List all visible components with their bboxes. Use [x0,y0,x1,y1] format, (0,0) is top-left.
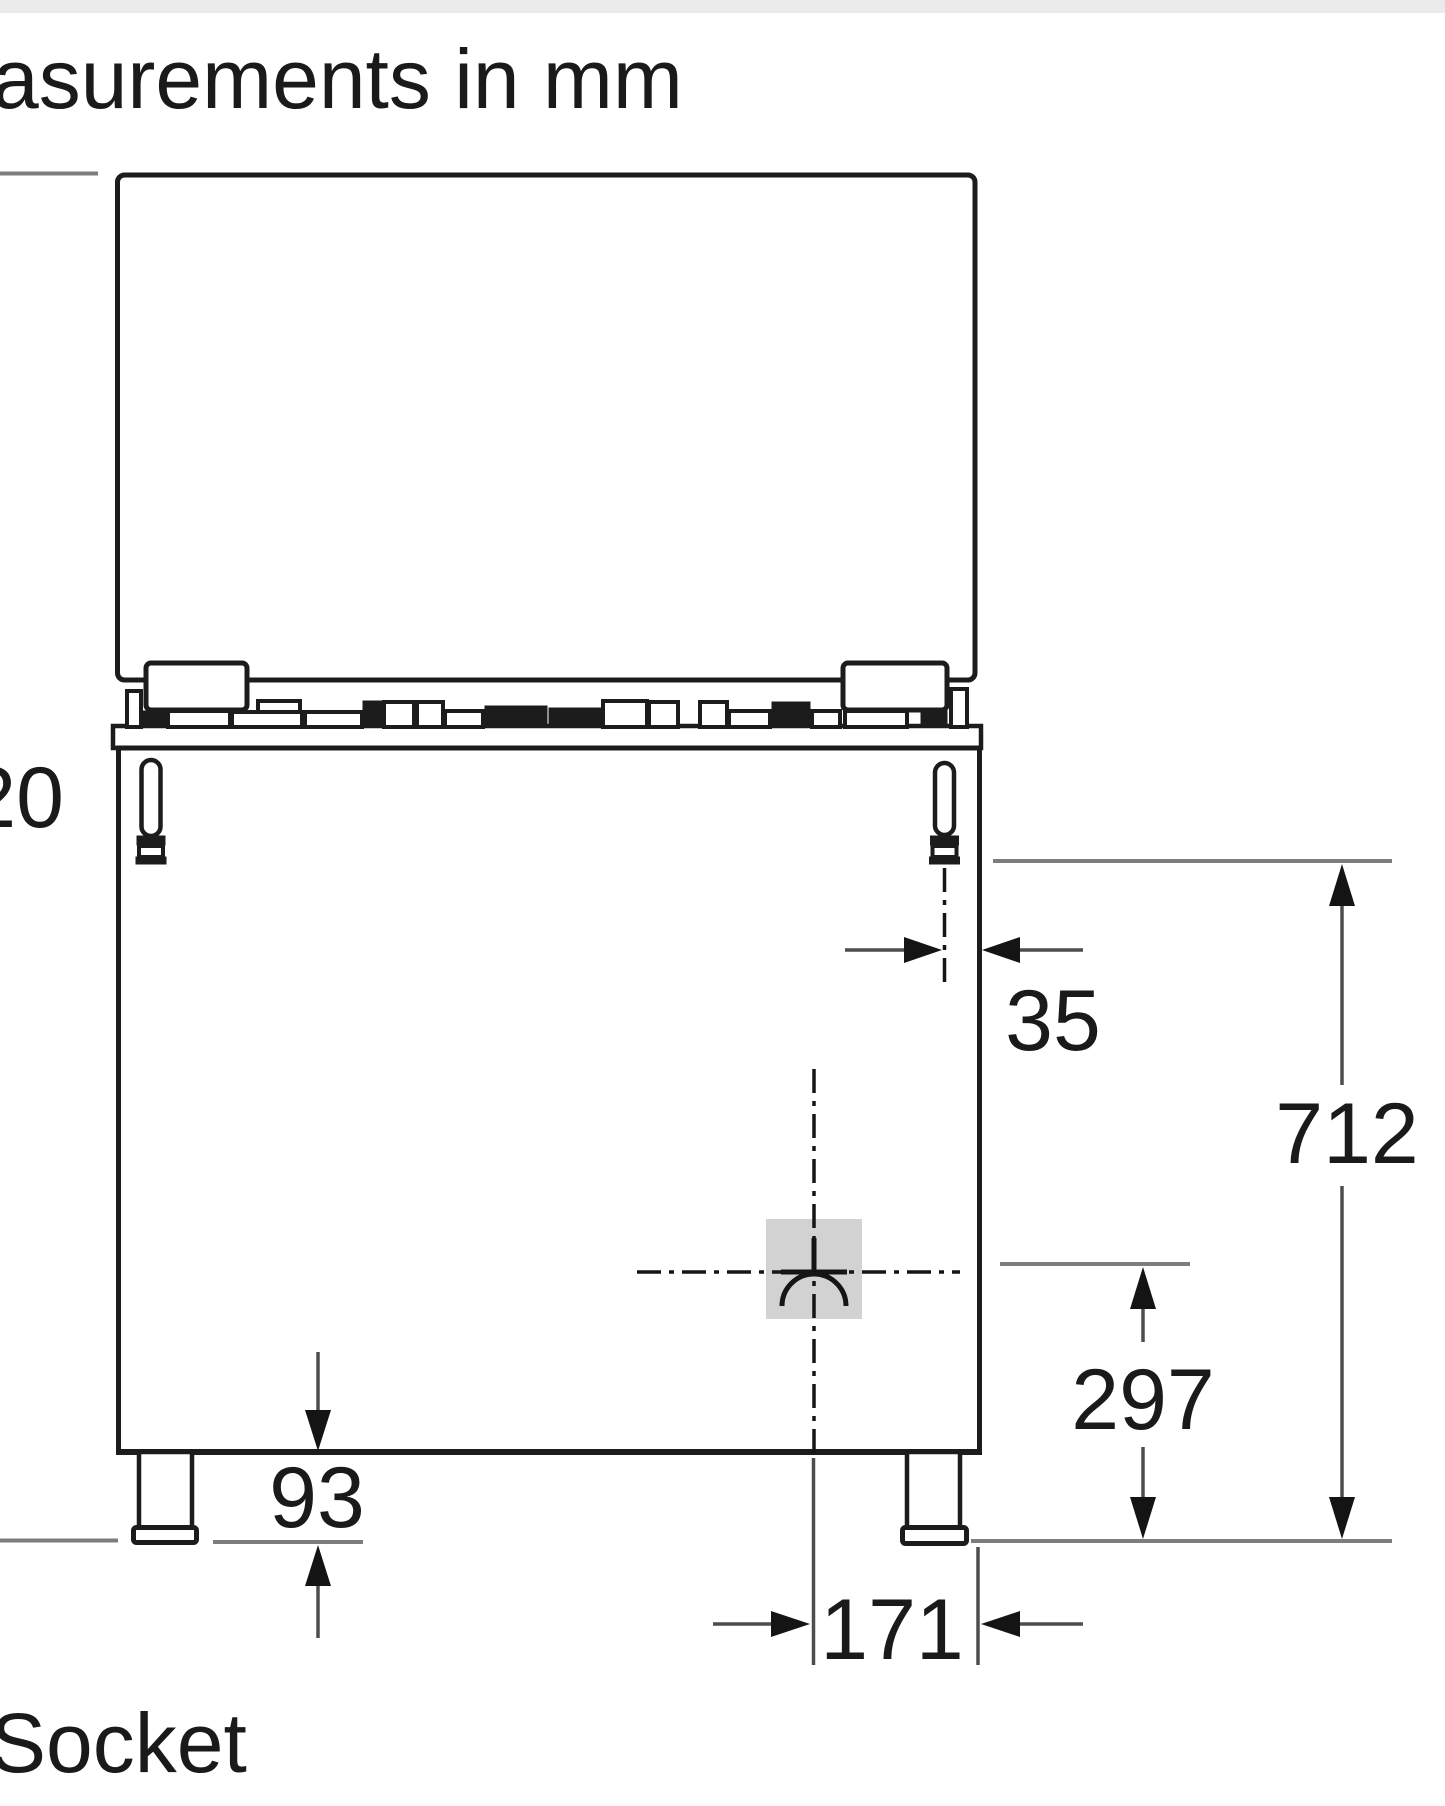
lid-open [118,175,976,680]
igniter-collar [930,857,960,864]
dim-297-label: 297 [1071,1352,1215,1448]
pan-support-segment [649,702,678,727]
cooktop-band [113,726,981,748]
foot-left [134,1452,197,1543]
pan-support-segment [168,711,230,727]
socket-label: Socket [0,1696,247,1790]
page-title: asurements in mm [0,32,683,126]
oven-body [119,748,980,1452]
igniter-collar [137,836,165,845]
pan-support-segment [812,711,840,727]
diagram-canvas: asurements in mm [0,0,1445,1806]
pan-support-segment [729,711,770,727]
igniter-rod [142,760,161,836]
hob-end-tab-left [127,691,141,727]
pan-support-segment [232,712,302,727]
igniter-rod [935,763,954,835]
pan-support-segment [143,711,169,727]
hob-end-tab-right [951,689,967,727]
igniter-left [136,760,166,864]
igniter-collar [139,846,163,857]
foot-right [903,1452,967,1544]
dim-712-label: 712 [1275,1086,1419,1182]
burner-cap-dark [485,706,547,727]
foot-cap [903,1528,967,1544]
foot-cap [134,1528,197,1543]
installation-dimension-diagram: asurements in mm [0,0,1445,1806]
burner-cap-dark [549,708,601,727]
top-edge-strip [0,0,1445,13]
pan-support-block-left [146,663,247,710]
pan-support-segment [921,711,947,727]
pan-support-block-right [843,663,947,710]
pan-support-segment [445,711,483,727]
pan-support-segment [603,701,647,727]
pan-support-segment [384,702,414,727]
pan-support-segment [417,702,443,727]
igniter-collar [136,857,166,864]
igniter-collar [931,836,959,845]
foot-leg [139,1452,192,1528]
burner-cap-dark [772,702,810,727]
dim-35-label: 35 [1005,973,1101,1069]
igniter-collar [933,846,957,857]
dim-20-label: 20 [0,750,64,846]
pan-support-segment [845,711,907,727]
pan-support-segment [700,702,727,727]
pan-support-segment [305,712,362,727]
dim-93-label: 93 [269,1450,365,1546]
foot-leg [907,1452,960,1528]
dim-171-label: 171 [820,1582,964,1678]
